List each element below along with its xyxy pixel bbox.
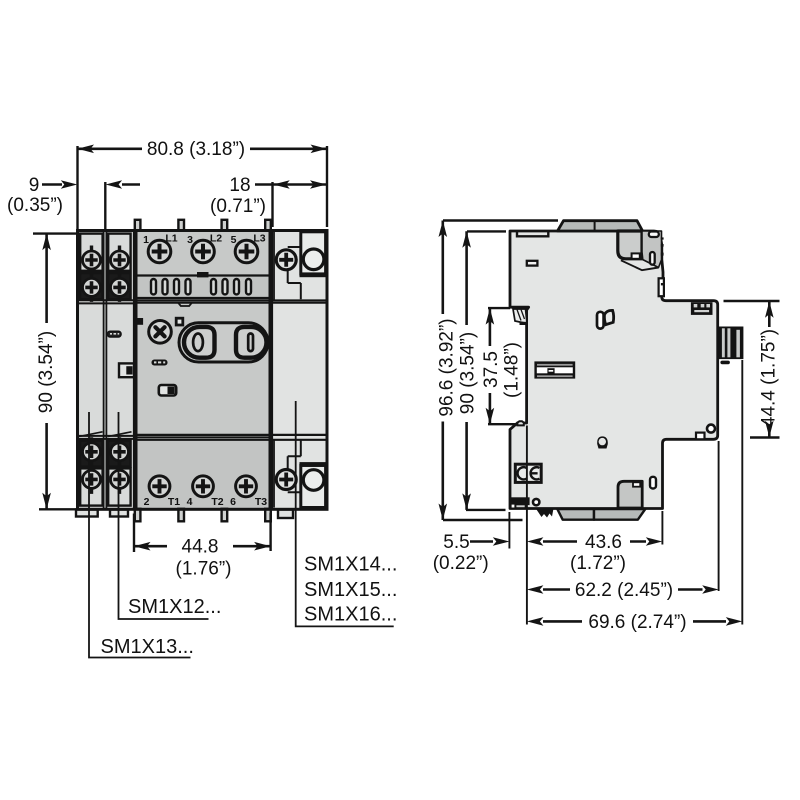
svg-text:T2: T2 (211, 496, 223, 508)
svg-text:18: 18 (229, 175, 250, 196)
svg-text:44.4 (1.75”): 44.4 (1.75”) (759, 329, 780, 427)
svg-text:L1: L1 (165, 233, 177, 245)
svg-text:4: 4 (187, 496, 193, 508)
svg-text:3: 3 (187, 234, 193, 246)
svg-text:L2: L2 (210, 233, 222, 245)
svg-text:43.6: 43.6 (585, 532, 622, 553)
svg-text:96.6 (3.92”): 96.6 (3.92”) (437, 318, 458, 416)
svg-text:(0.22”): (0.22”) (433, 553, 489, 574)
svg-text:90 (3.54”): 90 (3.54”) (36, 331, 57, 413)
svg-text:69.6 (2.74”): 69.6 (2.74”) (588, 612, 686, 633)
svg-text:37.5: 37.5 (481, 351, 502, 388)
svg-text:80.8 (3.18”): 80.8 (3.18”) (147, 139, 245, 160)
svg-text:(1.76”): (1.76”) (176, 558, 232, 579)
svg-text:SM1X15...: SM1X15... (304, 579, 397, 601)
svg-text:1: 1 (143, 234, 149, 246)
svg-text:44.8: 44.8 (182, 536, 219, 557)
svg-text:90 (3.54”): 90 (3.54”) (458, 332, 479, 414)
svg-text:5.5: 5.5 (443, 532, 469, 553)
svg-text:L3: L3 (253, 233, 265, 245)
svg-text:(0.71”): (0.71”) (210, 196, 266, 217)
svg-text:9: 9 (29, 175, 40, 196)
svg-text:(0.35”): (0.35”) (7, 195, 63, 216)
svg-text:(1.72”): (1.72”) (570, 553, 626, 574)
svg-text:T1: T1 (168, 496, 180, 508)
svg-text:2: 2 (144, 496, 150, 508)
svg-text:SM1X16...: SM1X16... (304, 604, 397, 626)
svg-text:(1.48”): (1.48”) (502, 342, 523, 398)
svg-text:62.2 (2.45”): 62.2 (2.45”) (575, 580, 673, 601)
svg-text:SM1X13...: SM1X13... (101, 636, 194, 658)
svg-text:T3: T3 (255, 496, 267, 508)
svg-text:SM1X14...: SM1X14... (304, 553, 397, 575)
svg-text:5: 5 (231, 234, 237, 246)
svg-text:SM1X12...: SM1X12... (128, 596, 221, 618)
svg-text:6: 6 (230, 496, 236, 508)
